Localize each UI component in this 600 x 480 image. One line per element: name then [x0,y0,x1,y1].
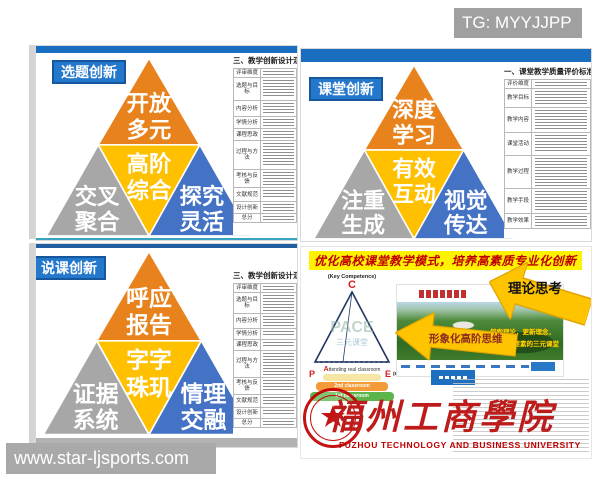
theory-arrow-label: 理论思考 [508,277,562,297]
pace-letter-p: P [309,369,315,379]
table-row: 过程与方法 [234,351,297,378]
tier-right-line1: 情理 [181,381,227,407]
table-row: 过程与方法 [234,141,297,170]
tier-right-line2: 灵活 [180,210,224,235]
pace-base-labels: P E (Evaluation) [309,369,401,378]
slide-top-bar [36,46,297,53]
table-row: 教学手段 [505,189,591,214]
watermark-bottom-text: www.star-ljsports.com [14,448,189,469]
tier-left-line1: 交叉 [75,183,120,209]
table-row: 设计创新 [234,408,297,419]
tier-left-line1: 证据 [73,381,119,407]
tier-mid-line1: 字字 [126,347,172,373]
rubric-table-classroom: 一、课堂教学质量评价标准 评价维度 教学目标 教学内容 课堂活动 教学过程 教学… [504,66,591,238]
table-row: 考核与反馈 [234,170,297,188]
table-row: 文献规范 [234,395,297,408]
table-row: 评审维度 [234,284,297,293]
pyramid-topic: 开放 多元 高阶 综合 交叉 聚合 探究 灵活 [42,56,256,238]
table-row: 课堂活动 [505,133,591,156]
pace-watermark-big: PACE [330,319,374,336]
tier-right-line1: 探究 [180,183,224,209]
table-row: 评审维度 [234,69,297,78]
tier-right-line2: 传达 [443,213,488,238]
tier-left-line2: 生成 [342,213,386,238]
table-row: 选题与目标 [234,78,297,101]
rubric-table-lesson: 三、教学创新设计汇报 评审维度 选题与目标 内容分析 学情分析 课程思政 过程与… [233,270,297,438]
slide-topic-innovation: 选题创新 开放 多元 高阶 综合 交叉 聚合 探究 灵活 三、教学创新设计汇报 … [35,45,298,241]
tier-top-line1: 呼应 [126,285,172,311]
slide-summary: 优化高校课堂教学模式，培养高素质专业化创新 (Key Competence) C… [300,246,592,459]
tier-mid-line1: 有效 [392,156,436,181]
tier-left-line2: 聚合 [74,209,120,235]
slide-classroom-innovation: 课堂创新 深度 学习 有效 互动 注重 生成 视觉 传达 一、课堂教学质量评价标… [300,48,592,242]
tier-right-line2: 交融 [181,407,227,433]
tier-left-line1: 注重 [342,188,385,213]
table-row: 设计创新 [234,202,297,214]
table-row: 教学目标 [505,89,591,108]
table-row: 教学内容 [505,108,591,133]
table-row: 教学效果 [505,214,591,229]
table-row: 评价维度 [505,80,591,89]
table-row: 文献规范 [234,188,297,202]
table-row: 内容分析 [234,101,297,117]
pace-letter-c: C [303,280,401,290]
table-row: 学情分析 [234,329,297,340]
rubric-title-lesson: 三、教学创新设计汇报 [233,270,297,281]
tier-top-line1: 深度 [392,97,436,122]
university-name-cn: 福州工商學院 [327,389,555,440]
tier-mid-line2: 珠玑 [126,374,172,400]
tier-mid-line2: 互动 [392,182,435,207]
table-row: 教学过程 [505,156,591,189]
thinking-arrow-label: 形象化高阶思维 [429,331,503,346]
watermark-bottom-left: www.star-ljsports.com [6,443,216,474]
tier-top-line1: 开放 [127,90,172,116]
tier-mid-line2: 综合 [127,177,172,203]
rubric-table-topic: 三、教学创新设计汇报 评审维度 选题与目标 内容分析 学情分析 课程思政 过程与… [233,55,297,235]
slide-lesson-innovation: 说课创新 呼应 报告 字字 珠玑 证据 系统 情理 交融 三、教学创新设计汇报 … [35,243,298,448]
table-row: 总分 [234,214,297,223]
pace-letter-e: E [385,369,391,379]
tier-mid-line1: 高阶 [127,150,172,176]
table-row: 总分 [234,419,297,428]
tier-left-line2: 系统 [73,407,119,433]
rubric-title-topic: 三、教学创新设计汇报 [233,55,297,66]
pyramid-classroom: 深度 学习 有效 互动 注重 生成 视觉 传达 [305,63,523,241]
table-row: 课程思政 [234,129,297,141]
nav-active-chip [531,362,555,371]
slide-top-bar [301,49,591,62]
table-row: 学情分析 [234,117,297,129]
table-row: 选题与目标 [234,293,297,314]
university-site-logo [419,290,467,298]
watermark-top-right: TG: MYYJJPP [454,8,582,38]
rubric-title-classroom: 一、课堂教学质量评价标准 [504,66,591,77]
pyramid-lesson: 呼应 报告 字字 珠玑 证据 系统 情理 交融 [40,248,258,438]
table-row: 课程思政 [234,340,297,351]
pace-triangle: PACE 三元课堂 [303,290,401,366]
tier-top-line2: 多元 [127,116,171,142]
tier-top-line2: 学习 [392,123,435,148]
tier-top-line2: 报告 [126,312,172,338]
tier-right-line1: 视觉 [444,188,487,213]
university-name-en: FUZHOU TECHNOLOGY AND BUSINESS UNIVERSIT… [339,440,581,450]
watermark-top-text: TG: MYYJJPP [462,13,572,33]
table-row: 内容分析 [234,314,297,329]
table-row: 考核与反馈 [234,378,297,395]
pace-watermark-small: 三元课堂 [336,337,368,347]
slide-bottom-line [36,238,297,240]
